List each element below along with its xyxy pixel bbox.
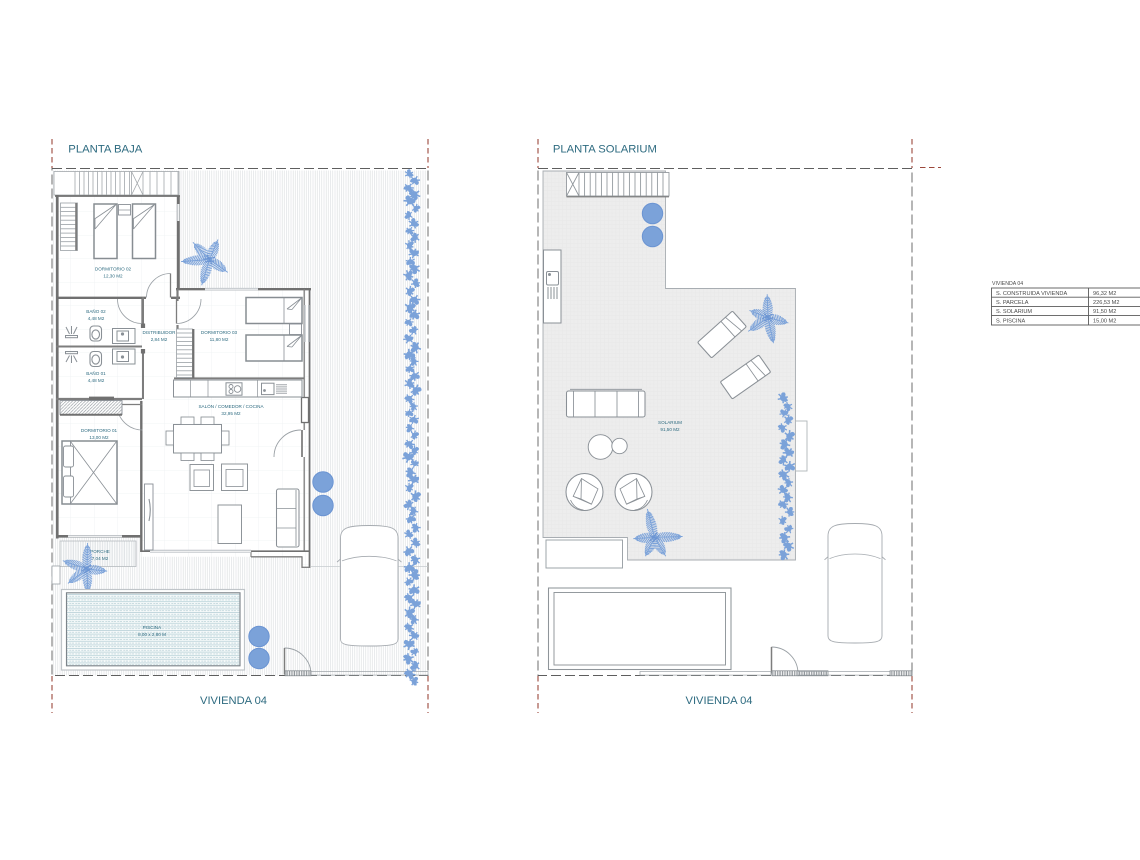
svg-text:PISCINA: PISCINA: [143, 625, 162, 630]
svg-text:8,00 x 2,80 M: 8,00 x 2,80 M: [138, 632, 166, 637]
svg-text:BAÑO 01: BAÑO 01: [86, 370, 106, 376]
svg-text:SALÓN / COMEDOR / COCINA: SALÓN / COMEDOR / COCINA: [198, 403, 264, 409]
svg-text:DORMITORIO 01: DORMITORIO 01: [81, 428, 118, 433]
svg-text:S. SOLARIUM: S. SOLARIUM: [996, 309, 1032, 315]
svg-text:S. PISCINA: S. PISCINA: [996, 318, 1025, 324]
svg-text:VIVIENDA 04: VIVIENDA 04: [992, 281, 1023, 287]
svg-text:DORMITORIO 03: DORMITORIO 03: [201, 330, 238, 335]
svg-text:PLANTA BAJA: PLANTA BAJA: [68, 143, 143, 155]
svg-text:15,00 M2: 15,00 M2: [1093, 318, 1116, 324]
svg-text:PORCHE: PORCHE: [90, 549, 110, 554]
svg-text:DORMITORIO 02: DORMITORIO 02: [95, 267, 132, 272]
svg-text:32,95 M2: 32,95 M2: [221, 411, 241, 416]
svg-text:13,00 M2: 13,00 M2: [89, 435, 109, 440]
svg-text:DISTRIBUIDOR: DISTRIBUIDOR: [143, 330, 177, 335]
svg-text:BAÑO 02: BAÑO 02: [86, 308, 106, 314]
svg-text:7,04 M2: 7,04 M2: [92, 556, 109, 561]
svg-text:96,32 M2: 96,32 M2: [1093, 291, 1116, 297]
svg-text:S. CONSTRUIDA VIVIENDA: S. CONSTRUIDA VIVIENDA: [996, 291, 1067, 297]
svg-text:91,50 M2: 91,50 M2: [1093, 309, 1116, 315]
svg-text:4,48 M2: 4,48 M2: [88, 316, 105, 321]
svg-text:VIVIENDA 04: VIVIENDA 04: [200, 695, 267, 707]
svg-text:11,80 M2: 11,80 M2: [210, 337, 229, 342]
svg-text:4,48 M2: 4,48 M2: [88, 378, 105, 383]
svg-text:VIVIENDA 04: VIVIENDA 04: [686, 695, 753, 707]
svg-text:2,84 M2: 2,84 M2: [151, 337, 168, 342]
svg-text:PLANTA SOLARIUM: PLANTA SOLARIUM: [553, 143, 657, 155]
svg-text:SOLARIUM: SOLARIUM: [658, 420, 682, 425]
svg-text:91,50 M2: 91,50 M2: [660, 427, 680, 432]
svg-text:226,53 M2: 226,53 M2: [1093, 300, 1119, 306]
svg-text:S. PARCELA: S. PARCELA: [996, 300, 1029, 306]
svg-text:12,30 M2: 12,30 M2: [103, 274, 123, 279]
